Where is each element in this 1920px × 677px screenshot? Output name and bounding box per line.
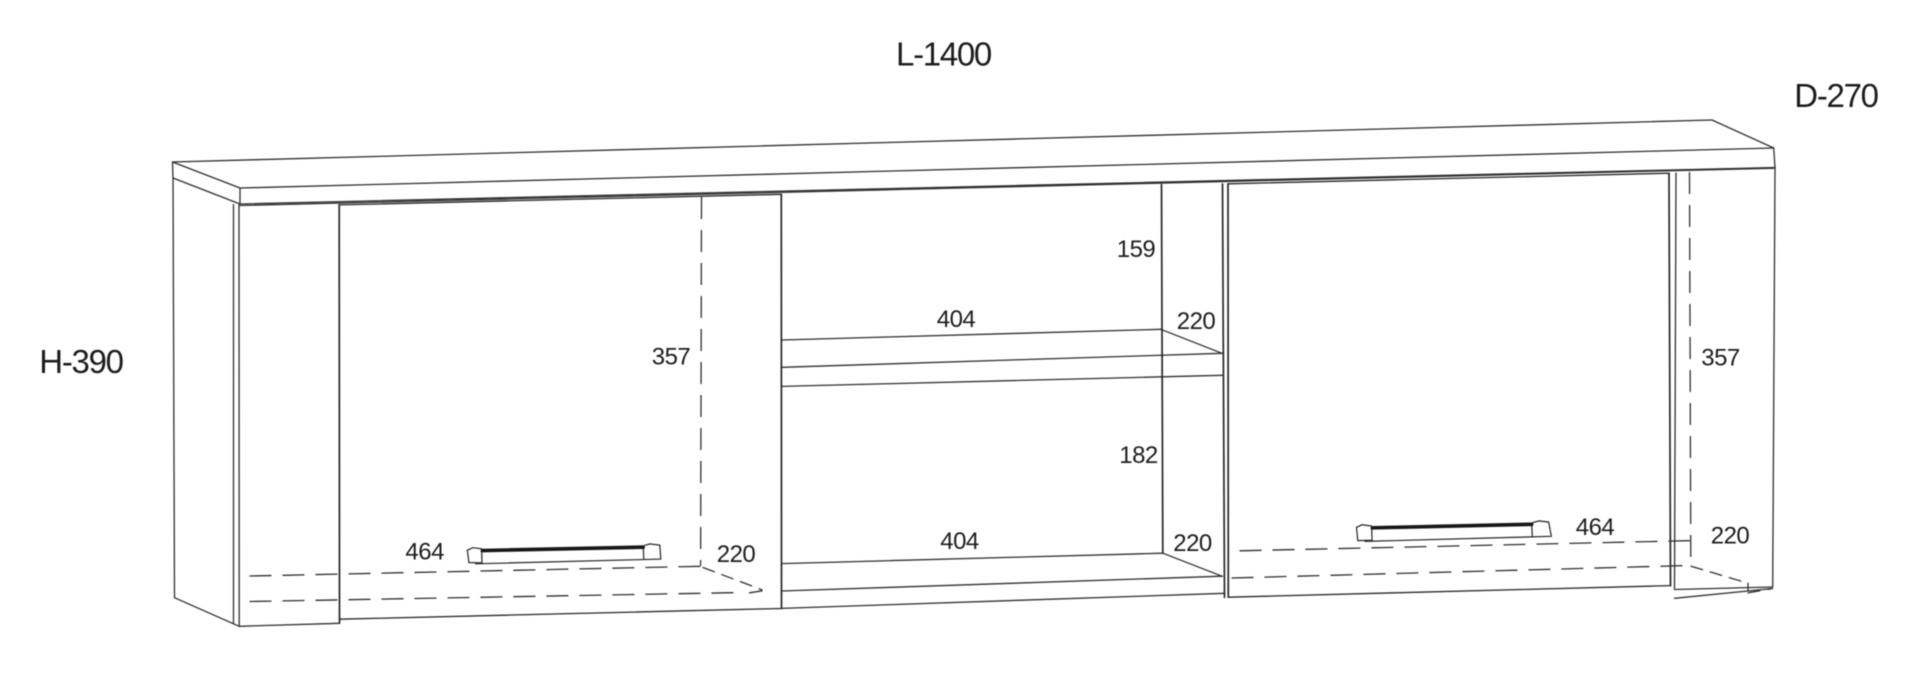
svg-text:220: 220 (1173, 530, 1212, 557)
svg-text:159: 159 (1117, 236, 1156, 263)
svg-text:220: 220 (1177, 308, 1216, 335)
svg-text:182: 182 (1119, 442, 1158, 469)
svg-text:H-390: H-390 (39, 343, 123, 380)
svg-text:464: 464 (1576, 514, 1615, 541)
svg-text:404: 404 (940, 528, 979, 555)
svg-text:220: 220 (1711, 522, 1750, 549)
svg-text:L-1400: L-1400 (896, 36, 992, 73)
svg-text:404: 404 (937, 306, 976, 333)
svg-text:464: 464 (405, 539, 444, 566)
svg-text:357: 357 (652, 344, 691, 371)
svg-text:D-270: D-270 (1794, 77, 1878, 114)
svg-text:220: 220 (717, 541, 756, 568)
svg-text:357: 357 (1701, 345, 1740, 372)
